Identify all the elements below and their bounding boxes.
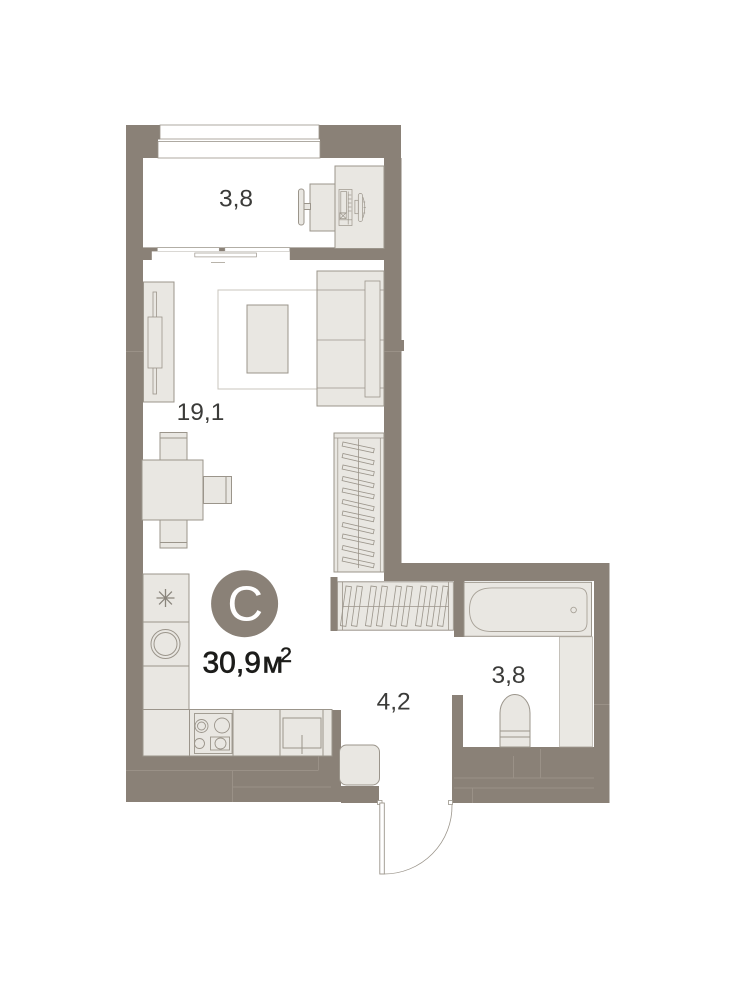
svg-text:19,1: 19,1: [177, 399, 225, 426]
svg-text:4,2: 4,2: [377, 689, 411, 716]
svg-text:30,9: 30,9: [203, 647, 261, 680]
svg-text:3,8: 3,8: [491, 662, 525, 689]
svg-text:2: 2: [280, 643, 292, 667]
svg-text:3,8: 3,8: [219, 185, 253, 212]
svg-text:С: С: [227, 577, 263, 632]
